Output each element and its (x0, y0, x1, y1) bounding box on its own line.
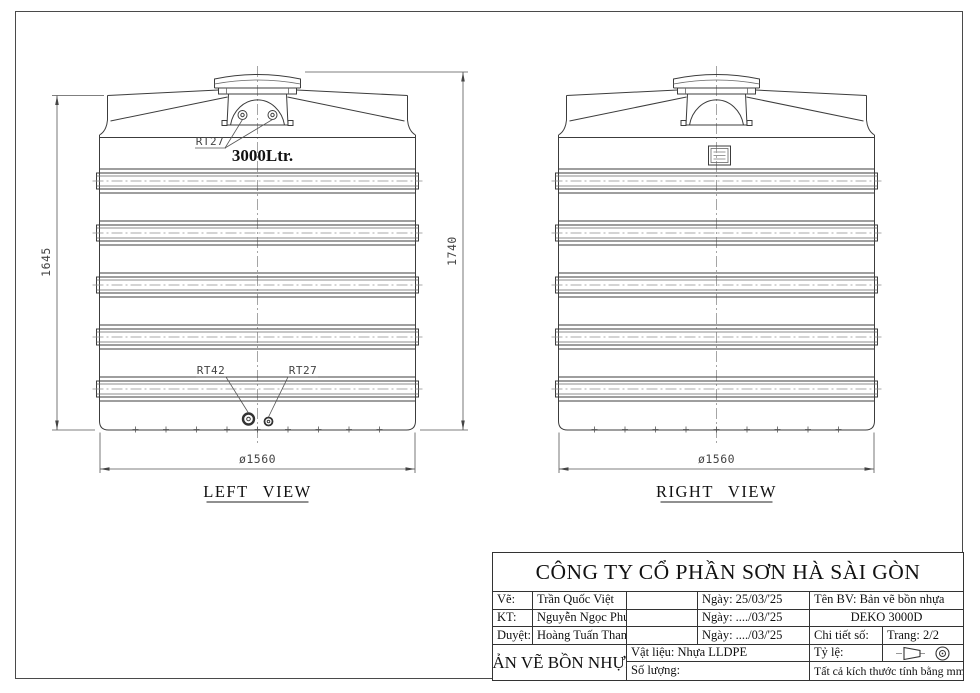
drawing-line (288, 97, 405, 121)
dimension-arrow (406, 467, 416, 471)
drawing-label: RT27 (196, 135, 225, 148)
dimension-arrow (865, 467, 875, 471)
drawing-label: 1740 (445, 236, 459, 266)
tank-outline (408, 120, 416, 135)
drawing-line (225, 120, 273, 149)
detail-no-cell: Chi tiết số: (810, 627, 883, 645)
checked-date: Ngày: ..../03/'25 (698, 610, 810, 628)
tank-outline (867, 120, 875, 135)
rt27-port-center (267, 420, 270, 423)
checked-by-label: KT: (493, 610, 533, 628)
dimension-arrow (461, 72, 465, 82)
drawing-line (111, 97, 228, 121)
empty-cell (627, 610, 698, 628)
model-cell: DEKO 3000D (810, 610, 963, 628)
projection-symbol-cell (883, 645, 963, 663)
dimension-arrow (559, 467, 569, 471)
approved-by-label: Duyệt: (493, 627, 533, 645)
drawing-label: ø1560 (698, 452, 735, 466)
drawing-label: RT42 (197, 364, 226, 377)
dimension-arrow (100, 467, 110, 471)
approved-by-name: Hoàng Tuấn Thanh (533, 627, 627, 645)
drawing-sheet: .dim{font-family:"DejaVu Sans Mono",mono… (0, 0, 980, 693)
top-port-circle (238, 111, 247, 120)
units-note-cell: Tất cả kích thước tính bằng mm (810, 662, 963, 680)
rt42-port-circle (243, 414, 254, 425)
drawing-line (756, 90, 867, 96)
tank-outline (866, 421, 875, 430)
company-name: CÔNG TY CỔ PHẦN SƠN HÀ SÀI GÒN (493, 553, 963, 592)
drawing-label: LEFT VIEW (203, 482, 312, 501)
drawing-line (226, 377, 249, 413)
drawing-line (225, 120, 243, 149)
drawing-line (108, 90, 219, 96)
approved-date: Ngày: ..../03/'25 (698, 627, 810, 645)
scale-cell: Tỷ lệ: (810, 645, 883, 663)
tank-outline (407, 421, 416, 430)
tank-outline (100, 120, 108, 135)
quantity-cell: Số lượng: (627, 662, 810, 680)
empty-cell (627, 592, 698, 610)
drawing-label: RT27 (289, 364, 318, 377)
tank-outline (100, 421, 109, 430)
rt27-port-circle (265, 418, 273, 426)
drawn-date: Ngày: 25/03/'25 (698, 592, 810, 610)
drawing-label: ø1560 (239, 452, 276, 466)
top-port-center (271, 113, 274, 116)
dimension-arrow (55, 421, 59, 431)
document-title: BẢN VẼ BỒN NHỰA (493, 645, 627, 680)
page-number-cell: Trang: 2/2 (883, 627, 963, 645)
drawing-name-cell: Tên BV: Bản vẽ bồn nhựa (810, 592, 963, 610)
checked-by-name: Nguyễn Ngọc Phú (533, 610, 627, 628)
dimension-arrow (55, 96, 59, 106)
drawn-by-label: Vẽ: (493, 592, 533, 610)
drawing-label: 1645 (39, 247, 53, 277)
material-cell: Vật liệu: Nhựa LLDPE (627, 645, 810, 663)
drawn-by-name: Trần Quốc Việt (533, 592, 627, 610)
rt42-port-center (247, 417, 251, 421)
drawing-line (570, 97, 687, 121)
empty-cell (627, 627, 698, 645)
drawing-label: 3000Ltr. (232, 146, 293, 165)
projection-cone-icon (896, 646, 928, 661)
drawing-line (567, 90, 678, 96)
drawing-line (747, 97, 864, 121)
projection-circles-icon (934, 645, 951, 662)
top-port-center (241, 113, 244, 116)
top-port-circle (268, 111, 277, 120)
tank-outline (559, 120, 567, 135)
title-block: CÔNG TY CỔ PHẦN SƠN HÀ SÀI GÒN Vẽ: Trần … (492, 552, 964, 681)
drawing-label: RIGHT VIEW (656, 482, 777, 501)
tank-outline (559, 421, 568, 430)
dimension-arrow (461, 421, 465, 431)
drawing-line (297, 90, 408, 96)
